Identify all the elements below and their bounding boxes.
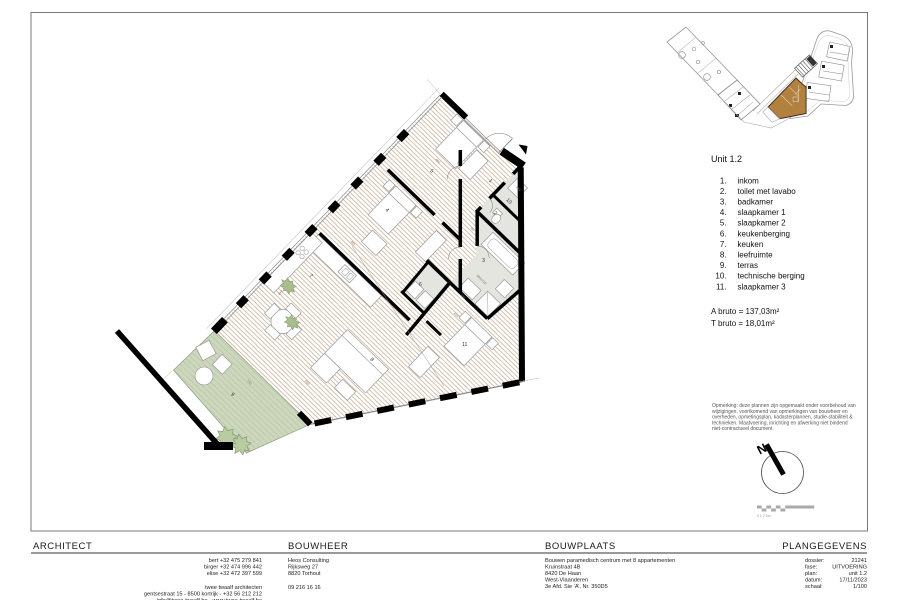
svg-text:keuken: keuken (738, 240, 764, 249)
svg-text:5.: 5. (720, 219, 727, 228)
svg-text:7.: 7. (720, 240, 727, 249)
svg-text:bert +32 475 279 841: bert +32 475 279 841 (209, 558, 262, 564)
svg-text:3.: 3. (720, 198, 727, 207)
svg-text:8820 Torhout: 8820 Torhout (288, 571, 321, 577)
svg-text:ARCHITECT: ARCHITECT (33, 541, 92, 552)
svg-text:9.: 9. (720, 261, 727, 270)
svg-text:slaapkamer 2: slaapkamer 2 (738, 219, 787, 228)
svg-text:slaapkamer 1: slaapkamer 1 (738, 208, 787, 217)
svg-text:dossier:: dossier: (805, 558, 825, 564)
svg-text:09 216 16 16: 09 216 16 16 (288, 585, 321, 591)
svg-text:0 1 2 5m: 0 1 2 5m (757, 514, 771, 518)
svg-text:niet-contractueel document.: niet-contractueel document. (712, 426, 774, 432)
svg-text:twee twaalf architecten: twee twaalf architecten (205, 585, 262, 591)
svg-text:terras: terras (738, 261, 758, 270)
svg-text:2.: 2. (720, 187, 727, 196)
svg-text:3e Afd. Sie ‘A’, Nr. 350D5: 3e Afd. Sie ‘A’, Nr. 350D5 (545, 584, 608, 590)
svg-text:elise +32 472 397 599: elise +32 472 397 599 (207, 571, 262, 577)
svg-text:8.: 8. (720, 251, 727, 260)
svg-text:plan:: plan: (805, 571, 818, 577)
svg-text:6.: 6. (720, 229, 727, 238)
svg-text:17/11/2023: 17/11/2023 (839, 578, 867, 584)
svg-text:T bruto = 18,01m²: T bruto = 18,01m² (711, 319, 775, 328)
svg-text:BOUWPLAATS: BOUWPLAATS (545, 541, 616, 552)
svg-text:inkom: inkom (738, 176, 760, 185)
svg-text:Heos Consulting: Heos Consulting (288, 558, 329, 564)
svg-text:10.: 10. (715, 272, 726, 281)
svg-text:fase:: fase: (805, 565, 818, 571)
svg-text:gentsestraat 15 - 8500 kortrij: gentsestraat 15 - 8500 kortrijk - +32 56… (144, 592, 262, 598)
svg-text:3: 3 (482, 258, 485, 264)
svg-text:West-Vlaanderen: West-Vlaanderen (545, 578, 588, 584)
svg-text:schaal:: schaal: (805, 584, 823, 590)
svg-text:BOUWHEER: BOUWHEER (288, 541, 348, 552)
svg-text:unit 1.2: unit 1.2 (849, 571, 867, 577)
svg-text:21241: 21241 (851, 558, 867, 564)
svg-text:Rijksweg 27: Rijksweg 27 (288, 565, 318, 571)
svg-text:slaapkamer 3: slaapkamer 3 (738, 282, 787, 291)
svg-text:birger +32 474 996 442: birger +32 474 996 442 (204, 565, 262, 571)
svg-text:toilet met lavabo: toilet met lavabo (738, 187, 797, 196)
svg-text:11.: 11. (716, 282, 727, 291)
svg-text:A bruto = 137,03m²: A bruto = 137,03m² (711, 307, 780, 316)
svg-text:8420 De Haan: 8420 De Haan (545, 571, 581, 577)
svg-text:1.: 1. (720, 176, 727, 185)
svg-text:4.: 4. (720, 208, 727, 217)
svg-text:Unit 1.2: Unit 1.2 (711, 154, 742, 164)
svg-text:datum:: datum: (805, 578, 823, 584)
svg-text:11: 11 (462, 342, 467, 348)
svg-text:UITVOERING: UITVOERING (832, 565, 867, 571)
svg-text:PLANGEGEVENS: PLANGEGEVENS (782, 541, 867, 552)
svg-text:Bouwen paramedisch centrum met: Bouwen paramedisch centrum met 8 apparte… (545, 558, 675, 564)
svg-text:badkamer: badkamer (738, 198, 774, 207)
svg-text:Kruinstraat 4B: Kruinstraat 4B (545, 565, 581, 571)
svg-text:1/100: 1/100 (853, 584, 867, 590)
svg-text:keukenberging: keukenberging (738, 229, 790, 238)
svg-text:6: 6 (419, 282, 422, 288)
svg-text:technische berging: technische berging (738, 272, 805, 281)
svg-text:leefruimte: leefruimte (738, 251, 774, 260)
